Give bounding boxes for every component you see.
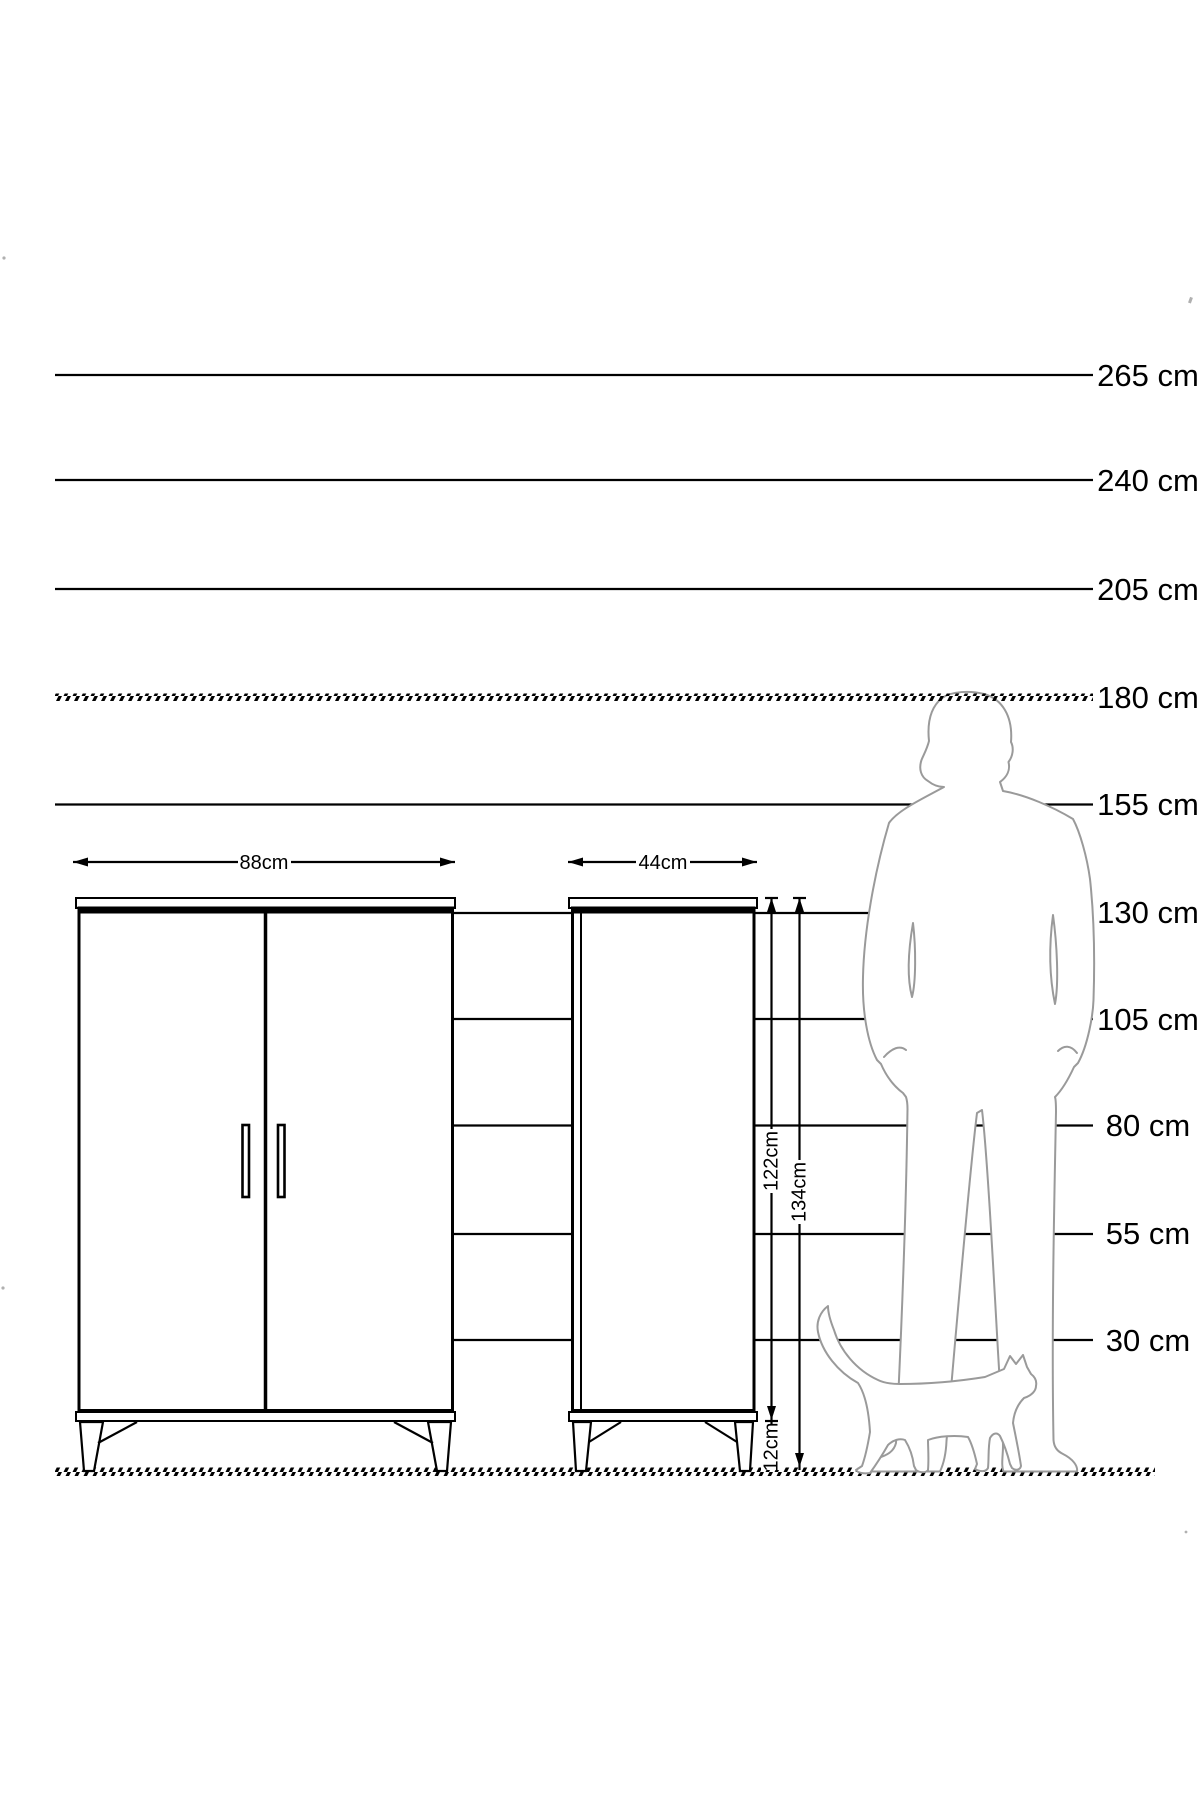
- dim-122-arrow-bottom: [767, 1406, 776, 1420]
- cabinet-leg-right-brace: [705, 1422, 737, 1442]
- scale-label-55: 55 cm: [1106, 1216, 1190, 1251]
- height-scale-labels: 265 cm 240 cm 205 cm 180 cm 155 cm 130 c…: [1097, 358, 1199, 1358]
- wardrobe-handle-left: [243, 1125, 250, 1197]
- dim-44-label: 44cm: [639, 852, 688, 874]
- wardrobe-leg-right: [428, 1422, 451, 1471]
- cabinet-leg-left-brace: [589, 1422, 621, 1442]
- wardrobe-handle-right: [278, 1125, 285, 1197]
- cabinet-leg-right: [735, 1422, 753, 1471]
- scale-label-240: 240 cm: [1097, 463, 1199, 498]
- dimension-cabinet-width: 44cm: [568, 852, 757, 874]
- scale-label-80: 80 cm: [1106, 1108, 1190, 1143]
- dim-134-arrow-bottom: [795, 1453, 804, 1467]
- wardrobe-bottom-panel: [76, 1412, 455, 1421]
- dim-122-label: 122cm: [761, 1131, 783, 1191]
- scale-label-105: 105 cm: [1097, 1002, 1199, 1037]
- dim-122-arrow-top: [767, 898, 776, 912]
- ground-line: [55, 1468, 1155, 1477]
- wardrobe: [76, 898, 455, 1471]
- wardrobe-leg-left: [80, 1422, 103, 1471]
- scale-label-180: 180 cm: [1097, 680, 1199, 715]
- cabinet: [569, 898, 757, 1471]
- scale-label-265: 265 cm: [1097, 358, 1199, 393]
- dim-88-label: 88cm: [240, 852, 289, 874]
- wardrobe-leg-left-brace: [98, 1422, 137, 1443]
- wardrobe-leg-right-brace: [394, 1422, 433, 1443]
- scale-label-155: 155 cm: [1097, 787, 1199, 822]
- man-silhouette: [862, 692, 1094, 1472]
- dim-134-arrow-top: [795, 898, 804, 912]
- cabinet-bottom-panel: [569, 1412, 757, 1421]
- cabinet-leg-left: [573, 1422, 591, 1471]
- diagram-canvas: 88cm 44cm 122cm 134cm 12cm: [0, 0, 1200, 1800]
- dimension-wardrobe-width: 88cm: [73, 852, 455, 874]
- dim-88-arrow-right: [440, 858, 455, 867]
- man-outline: [862, 692, 1094, 1472]
- dim-88-arrow-left: [73, 858, 88, 867]
- cabinet-body: [573, 908, 755, 1412]
- dim-134-label: 134cm: [789, 1162, 811, 1222]
- scale-label-130: 130 cm: [1097, 895, 1199, 930]
- dim-44-arrow-right: [742, 858, 757, 867]
- dimension-diagram: 88cm 44cm 122cm 134cm 12cm: [0, 0, 1200, 1800]
- scale-label-205: 205 cm: [1097, 572, 1199, 607]
- scale-label-30: 30 cm: [1106, 1323, 1190, 1358]
- dim-44-arrow-left: [568, 858, 583, 867]
- scale-line-180-hatched: [55, 694, 1093, 702]
- dim-12-label: 12cm: [761, 1423, 783, 1472]
